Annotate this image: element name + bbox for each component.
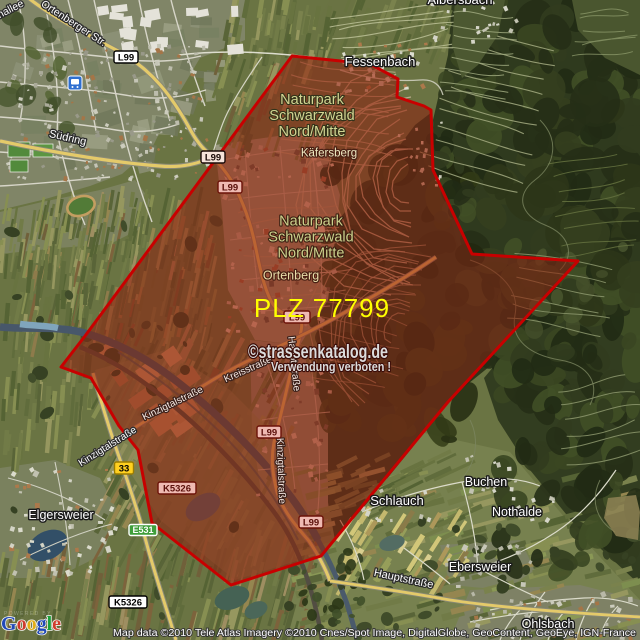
svg-text:L99: L99: [222, 182, 238, 193]
svg-text:L99: L99: [303, 517, 319, 528]
svg-text:Kinzigtalstraße: Kinzigtalstraße: [274, 438, 287, 505]
svg-text:g: g: [37, 613, 47, 635]
svg-text:o: o: [17, 613, 27, 635]
svg-text:Fessenbach: Fessenbach: [345, 54, 416, 69]
svg-text:Nothalde: Nothalde: [492, 505, 542, 519]
svg-text:Map data ©2010 Tele Atlas Ima: Map data ©2010 Tele Atlas Imagery ©2010 …: [113, 628, 637, 639]
svg-text:Nord/Mitte: Nord/Mitte: [279, 124, 346, 140]
svg-text:L99: L99: [205, 152, 221, 163]
svg-text:Ebersweier: Ebersweier: [449, 560, 512, 574]
svg-text:Naturpark: Naturpark: [279, 214, 343, 230]
svg-text:K5326: K5326: [163, 483, 191, 494]
svg-text:Verwendung verboten !: Verwendung verboten !: [271, 360, 391, 374]
svg-text:Käfersberg: Käfersberg: [301, 148, 357, 160]
svg-text:G: G: [1, 613, 17, 635]
svg-text:Naturpark: Naturpark: [280, 92, 344, 108]
svg-text:L99: L99: [261, 427, 277, 438]
svg-text:Ortenberg: Ortenberg: [263, 269, 319, 283]
svg-text:Elgersweier: Elgersweier: [28, 508, 93, 522]
svg-text:PLZ 77799: PLZ 77799: [254, 293, 390, 323]
svg-text:Buchen: Buchen: [465, 475, 507, 489]
svg-text:Albersbach: Albersbach: [427, 0, 492, 7]
svg-text:E531: E531: [132, 525, 153, 535]
svg-text:e: e: [52, 613, 61, 635]
svg-text:L99: L99: [118, 52, 134, 63]
svg-text:Schwarzwald: Schwarzwald: [269, 108, 354, 124]
svg-text:33: 33: [119, 463, 130, 474]
svg-text:Nord/Mitte: Nord/Mitte: [278, 246, 345, 262]
svg-text:o: o: [27, 613, 37, 635]
svg-text:Schlauch: Schlauch: [370, 493, 423, 508]
svg-text:K5326: K5326: [114, 597, 142, 608]
svg-text:Schwarzwald: Schwarzwald: [268, 230, 353, 246]
